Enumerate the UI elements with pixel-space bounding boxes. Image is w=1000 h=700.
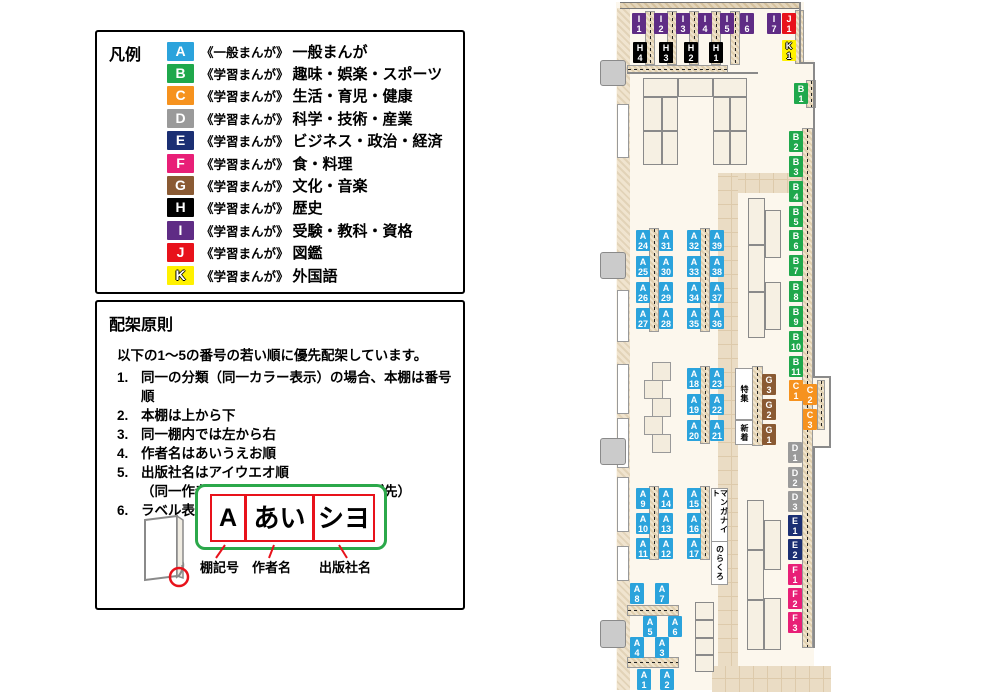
shelf-label-A35: A35	[687, 308, 701, 329]
shelf-label-A18: A18	[687, 368, 701, 389]
shelf-label-C1: C1	[789, 380, 803, 401]
shelf-label-G3: G3	[762, 374, 776, 395]
legend-series: 《学習まんが》	[201, 109, 289, 128]
display-sign-norakuro: のらくろ	[711, 541, 728, 585]
legend-series: 《学習まんが》	[201, 131, 289, 150]
rule-number: 5.	[117, 463, 141, 482]
table	[748, 292, 765, 338]
shelf-label-B1: B1	[794, 83, 808, 104]
caption-shelf-code: 棚記号	[200, 557, 239, 576]
shelf-label-I3: I3	[676, 13, 690, 34]
legend-row-B: B《学習まんが》趣味・娯楽・スポーツ	[167, 62, 459, 84]
table	[695, 655, 714, 672]
legend-series: 《学習まんが》	[201, 243, 289, 262]
shelf-label-A23: A23	[710, 368, 724, 389]
shelf-label-A28: A28	[659, 308, 673, 329]
wall-line	[813, 62, 815, 378]
shelf-label-C3: C3	[803, 409, 817, 430]
shelf-label-A21: A21	[710, 420, 724, 441]
wall-line	[627, 72, 758, 74]
table	[764, 598, 781, 650]
walkway	[712, 666, 831, 692]
legend-rows: A《一般まんが》一般まんがB《学習まんが》趣味・娯楽・スポーツC《学習まんが》生…	[167, 40, 459, 286]
label-author-box: あい	[245, 494, 314, 542]
rule-text: 本棚は上から下	[141, 406, 236, 425]
label-publisher-box: シヨ	[313, 494, 375, 542]
legend-series: 《学習まんが》	[201, 266, 289, 285]
door	[600, 60, 626, 86]
bookshelf-vertical	[649, 486, 659, 560]
legend-row-I: I《学習まんが》受験・教科・資格	[167, 219, 459, 241]
table	[748, 245, 765, 292]
shelf-label-A38: A38	[710, 256, 724, 277]
shelf-label-A1: A1	[637, 669, 651, 690]
principles-panel: 配架原則 以下の1～5の番号の若い順に優先配架しています。 1.同一の分類（同一…	[95, 300, 465, 610]
label-format-box: A あい シヨ	[195, 484, 387, 550]
table	[695, 638, 714, 655]
shelf-label-A27: A27	[636, 308, 650, 329]
principles-title: 配架原則	[109, 311, 173, 335]
rule-item-4: 4.作者名はあいうえお順	[117, 444, 463, 463]
table	[765, 282, 781, 330]
label-shelf-code-box: A	[210, 494, 246, 542]
legend-badge-I: I	[167, 221, 194, 240]
bookshelf-horizontal	[627, 605, 679, 616]
table	[678, 78, 713, 97]
table	[764, 520, 781, 570]
legend-row-H: H《学習まんが》歴史	[167, 197, 459, 219]
table	[765, 210, 781, 258]
legend-series: 《一般まんが》	[201, 42, 289, 61]
shelf-label-B5: B5	[789, 206, 803, 227]
shelf-label-A19: A19	[687, 394, 701, 415]
rule-text: 作者名はあいうえお順	[141, 444, 276, 463]
legend-badge-K: K	[167, 266, 194, 285]
table	[713, 131, 730, 165]
rule-number: 6.	[117, 501, 141, 520]
table	[713, 97, 730, 131]
shelf-label-A8: A8	[630, 583, 644, 604]
shelf-label-D2: D2	[788, 467, 802, 488]
shelf-label-A5: A5	[643, 616, 657, 637]
seat	[644, 380, 663, 399]
legend-series: 《学習まんが》	[201, 154, 289, 173]
shelf-label-A39: A39	[710, 230, 724, 251]
shelf-label-A22: A22	[710, 394, 724, 415]
legend-category: 趣味・娯楽・スポーツ	[293, 63, 443, 84]
display-sign-shinchaku: 新着	[735, 420, 753, 445]
shelf-label-H4: H4	[633, 42, 647, 63]
legend-row-C: C《学習まんが》生活・育児・健康	[167, 85, 459, 107]
legend-badge-H: H	[167, 198, 194, 217]
shelf-label-A15: A15	[687, 488, 701, 509]
shelf-label-F1: F1	[788, 564, 802, 585]
shelf-label-H2: H2	[684, 42, 698, 63]
door	[600, 438, 626, 465]
legend-category: 受験・教科・資格	[293, 220, 413, 241]
legend-row-J: J《学習まんが》図鑑	[167, 242, 459, 264]
shelf-label-A7: A7	[655, 583, 669, 604]
shelf-label-A11: A11	[636, 538, 650, 559]
table	[747, 600, 764, 650]
shelf-label-A29: A29	[659, 282, 673, 303]
pillar	[617, 364, 629, 414]
manga-floor-map-page: 凡例 A《一般まんが》一般まんがB《学習まんが》趣味・娯楽・スポーツC《学習まん…	[0, 0, 1000, 700]
seat	[644, 416, 663, 435]
legend-badge-F: F	[167, 154, 194, 173]
shelf-label-G1: G1	[762, 424, 776, 445]
legend-row-G: G《学習まんが》文化・音楽	[167, 174, 459, 196]
shelf-label-H1: H1	[709, 42, 723, 63]
shelf-label-A26: A26	[636, 282, 650, 303]
table	[643, 131, 662, 165]
rule-number: 4.	[117, 444, 141, 463]
door	[600, 620, 626, 648]
legend-row-A: A《一般まんが》一般まんが	[167, 40, 459, 62]
legend-row-F: F《学習まんが》食・料理	[167, 152, 459, 174]
legend-series: 《学習まんが》	[201, 64, 289, 83]
rule-item-5: 5.出版社名はアイウエオ順	[117, 463, 463, 482]
legend-category: 図鑑	[293, 242, 323, 263]
legend-series: 《学習まんが》	[201, 176, 289, 195]
shelf-label-E2: E2	[788, 539, 802, 560]
legend-row-K: K《学習まんが》外国語	[167, 264, 459, 286]
bookshelf-vertical	[700, 486, 710, 560]
table	[730, 131, 747, 165]
table	[643, 78, 678, 97]
legend-title: 凡例	[109, 41, 141, 65]
rule-text: 同一の分類（同一カラー表示）の場合、本棚は番号順	[141, 368, 463, 406]
shelf-label-B8: B8	[789, 281, 803, 302]
shelf-label-D1: D1	[788, 442, 802, 463]
legend-badge-J: J	[167, 243, 194, 262]
shelf-label-K1: K1	[782, 40, 796, 61]
display-sign-manganight: マンガナイト	[711, 488, 728, 543]
pillar	[617, 290, 629, 342]
shelf-label-I5: I5	[720, 13, 734, 34]
table	[695, 620, 714, 638]
display-sign-tokushu: 特集	[735, 368, 753, 420]
shelf-label-G2: G2	[762, 399, 776, 420]
legend-category: 生活・育児・健康	[293, 85, 413, 106]
table	[747, 500, 764, 550]
legend-category: 一般まんが	[293, 41, 368, 62]
shelf-label-A25: A25	[636, 256, 650, 277]
rule-number: 1.	[117, 368, 141, 406]
legend-badge-C: C	[167, 86, 194, 105]
shelf-label-F3: F3	[788, 612, 802, 633]
shelf-label-A12: A12	[659, 538, 673, 559]
shelf-label-I7: I7	[767, 13, 781, 34]
table	[748, 198, 765, 245]
shelf-label-A20: A20	[687, 420, 701, 441]
table	[730, 97, 747, 131]
pillar	[617, 104, 629, 158]
seat	[652, 398, 671, 417]
caption-author: 作者名	[252, 557, 291, 576]
shelf-label-B2: B2	[789, 131, 803, 152]
rule-text: 出版社名はアイウエオ順	[141, 463, 289, 482]
shelf-label-B11: B11	[789, 356, 803, 377]
shelf-label-A10: A10	[636, 513, 650, 534]
shelf-label-C2: C2	[803, 384, 817, 405]
caption-publisher: 出版社名	[319, 557, 371, 576]
shelf-label-F2: F2	[788, 588, 802, 609]
shelf-label-A31: A31	[659, 230, 673, 251]
table	[662, 131, 678, 165]
seat	[652, 362, 671, 381]
shelf-label-B7: B7	[789, 255, 803, 276]
legend-series: 《学習まんが》	[201, 221, 289, 240]
shelf-label-I4: I4	[698, 13, 712, 34]
shelf-label-A33: A33	[687, 256, 701, 277]
rule-item-3: 3.同一棚内では左から右	[117, 425, 463, 444]
shelf-label-E1: E1	[788, 515, 802, 536]
shelf-label-A16: A16	[687, 513, 701, 534]
legend-badge-D: D	[167, 109, 194, 128]
legend-row-E: E《学習まんが》ビジネス・政治・経済	[167, 130, 459, 152]
rule-item-1: 1.同一の分類（同一カラー表示）の場合、本棚は番号順	[117, 368, 463, 406]
door	[600, 252, 626, 279]
table	[695, 602, 714, 620]
rule-item-2: 2.本棚は上から下	[117, 406, 463, 425]
shelf-label-D3: D3	[788, 491, 802, 512]
legend-row-D: D《学習まんが》科学・技術・産業	[167, 107, 459, 129]
legend-series: 《学習まんが》	[201, 86, 289, 105]
shelf-label-B4: B4	[789, 181, 803, 202]
shelf-label-I2: I2	[654, 13, 668, 34]
table	[713, 78, 747, 97]
shelf-label-A6: A6	[668, 616, 682, 637]
bookshelf-vertical	[649, 228, 659, 332]
shelf-label-A30: A30	[659, 256, 673, 277]
legend-category: ビジネス・政治・経済	[293, 130, 443, 151]
bookshelf-horizontal	[627, 657, 679, 668]
legend-category: 科学・技術・産業	[293, 108, 413, 129]
legend-category: 外国語	[293, 265, 338, 286]
legend-badge-E: E	[167, 131, 194, 150]
legend-category: 文化・音楽	[293, 175, 368, 196]
book-icon	[133, 512, 195, 590]
shelf-label-B10: B10	[789, 331, 803, 352]
pillar	[617, 477, 629, 532]
legend-series: 《学習まんが》	[201, 198, 289, 217]
wall-line	[813, 446, 815, 648]
legend-badge-G: G	[167, 176, 194, 195]
shelf-label-A34: A34	[687, 282, 701, 303]
bookshelf-vertical	[817, 380, 825, 430]
seat	[652, 434, 671, 453]
wall-line	[829, 376, 831, 448]
wall-line	[813, 446, 831, 448]
outside-mask	[804, 0, 1000, 60]
shelf-label-I1: I1	[632, 13, 646, 34]
wall-line	[799, 2, 801, 64]
table	[643, 97, 662, 131]
shelf-label-A2: A2	[660, 669, 674, 690]
shelf-label-A36: A36	[710, 308, 724, 329]
rule-number: 3.	[117, 425, 141, 444]
rule-text: 同一棚内では左から右	[141, 425, 276, 444]
shelf-label-J1: J1	[782, 13, 796, 34]
shelf-label-A9: A9	[636, 488, 650, 509]
rule-number: 2.	[117, 406, 141, 425]
legend-category: 食・料理	[293, 153, 353, 174]
shelf-label-A24: A24	[636, 230, 650, 251]
shelf-label-A14: A14	[659, 488, 673, 509]
shelf-label-A13: A13	[659, 513, 673, 534]
legend-panel: 凡例 A《一般まんが》一般まんがB《学習まんが》趣味・娯楽・スポーツC《学習まん…	[95, 30, 465, 294]
principles-intro: 以下の1～5の番号の若い順に優先配架しています。	[117, 344, 427, 364]
shelf-label-B9: B9	[789, 306, 803, 327]
shelf-label-B6: B6	[789, 230, 803, 251]
legend-category: 歴史	[293, 197, 323, 218]
bookshelf-vertical	[700, 228, 710, 332]
shelf-label-B3: B3	[789, 156, 803, 177]
shelf-label-I6: I6	[740, 13, 754, 34]
pillar	[617, 546, 629, 581]
table	[747, 550, 764, 600]
shelf-label-A17: A17	[687, 538, 701, 559]
legend-badge-B: B	[167, 64, 194, 83]
shelf-label-A4: A4	[630, 637, 644, 658]
table	[662, 97, 678, 131]
shelf-label-A37: A37	[710, 282, 724, 303]
shelf-label-A32: A32	[687, 230, 701, 251]
shelf-label-A3: A3	[655, 637, 669, 658]
top-wall	[620, 2, 800, 9]
shelf-label-H3: H3	[659, 42, 673, 63]
legend-badge-A: A	[167, 42, 194, 61]
bookshelf-vertical	[700, 366, 710, 444]
